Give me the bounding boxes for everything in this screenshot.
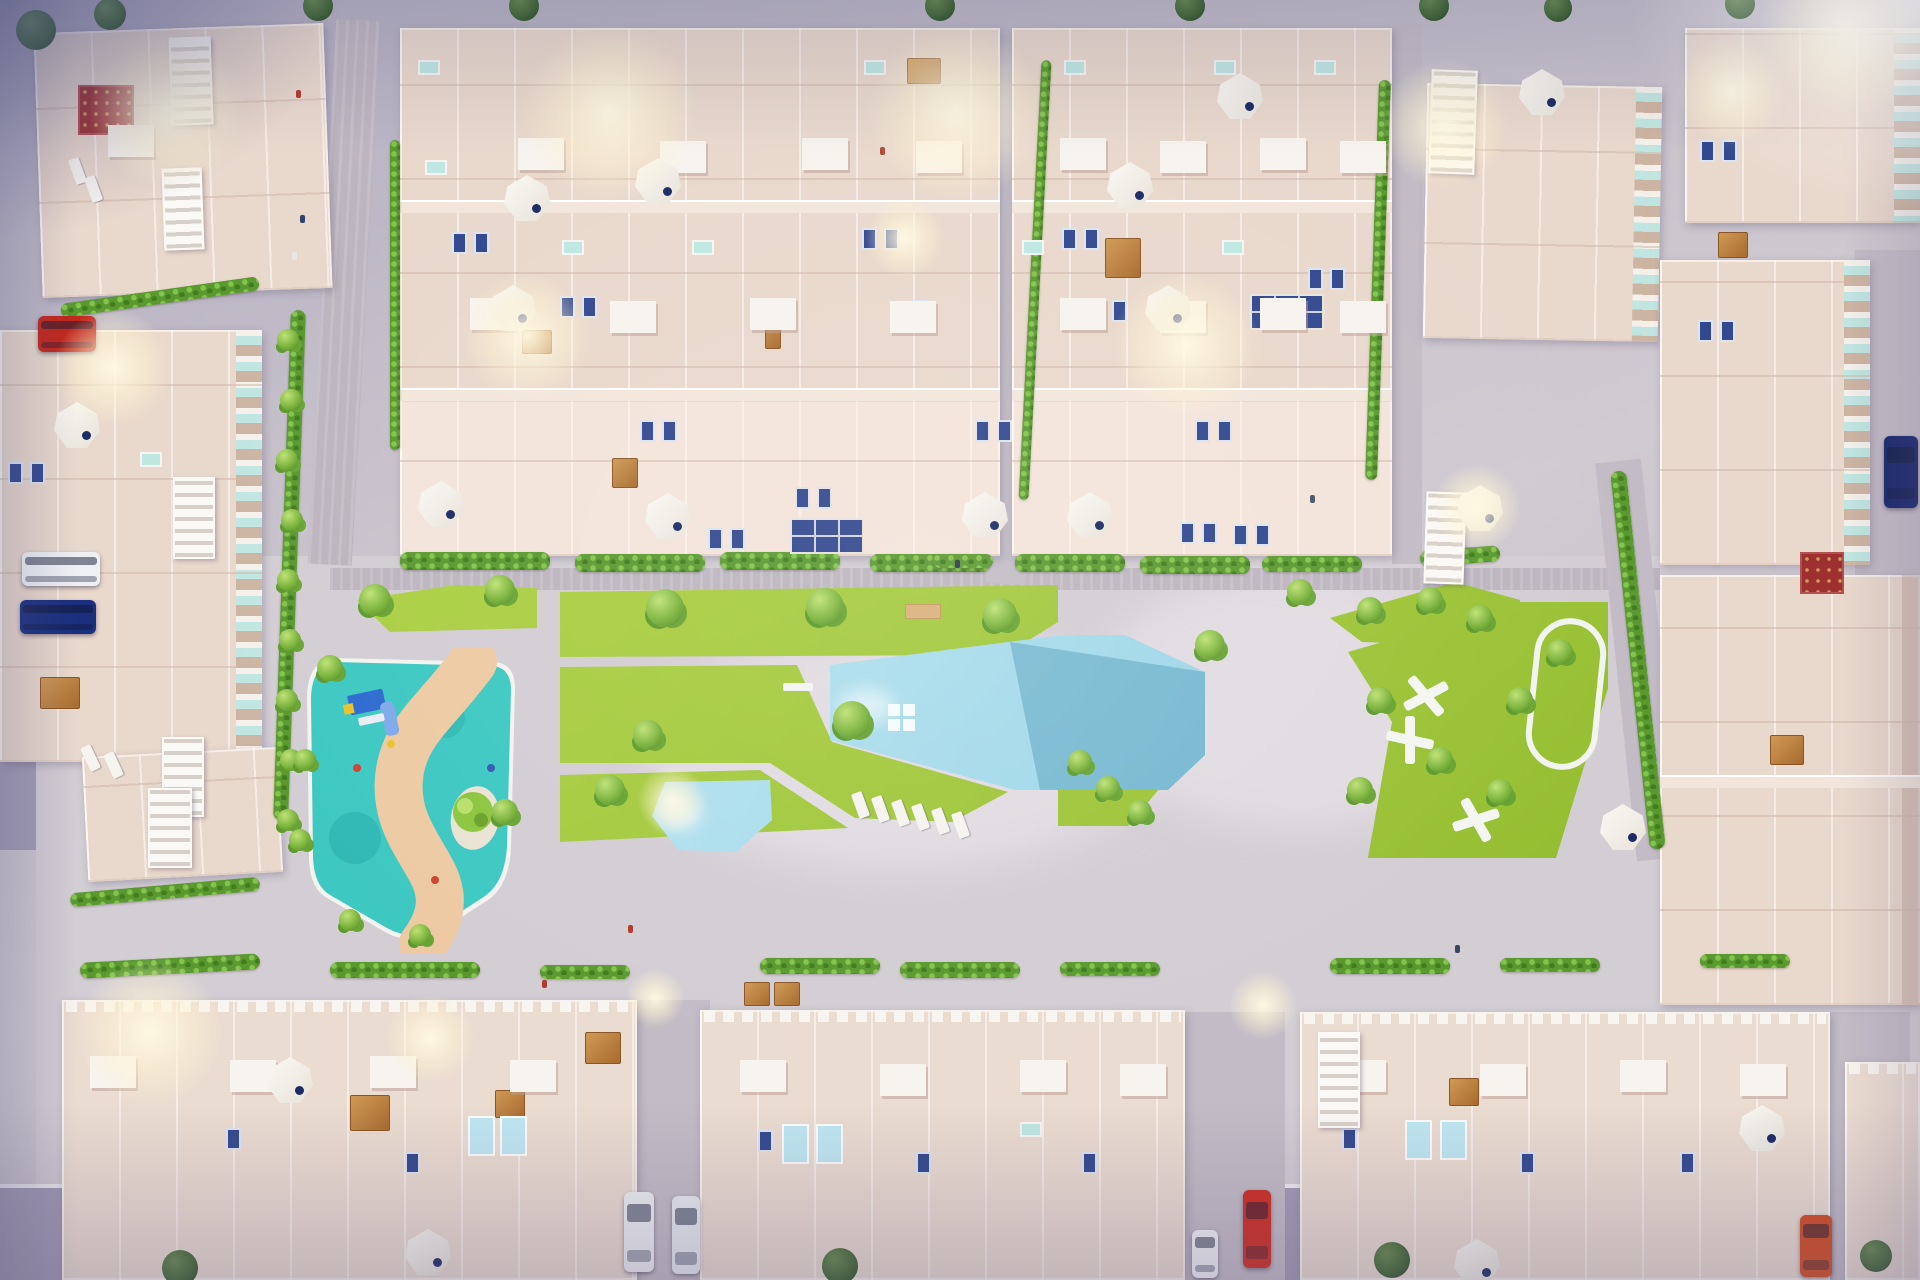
private-pool — [782, 1124, 809, 1164]
tree — [1417, 587, 1443, 613]
street-tree — [162, 1250, 198, 1280]
skylight-panel — [916, 1152, 931, 1174]
roof-structure — [1740, 1064, 1786, 1096]
roof-structure — [1340, 301, 1386, 333]
street-tree — [1860, 1240, 1892, 1272]
tree — [339, 909, 361, 931]
roof-divider — [1660, 775, 1920, 788]
roof-structure — [370, 1056, 416, 1088]
roof-structure — [1120, 1064, 1166, 1096]
tree — [280, 389, 302, 411]
tree — [1128, 800, 1152, 824]
tree — [1357, 597, 1383, 623]
rooftop-stair — [148, 788, 192, 868]
building-top-right-b — [1685, 28, 1920, 223]
street-tree — [94, 0, 126, 30]
hedge-row — [330, 962, 480, 978]
roof-structure — [916, 141, 962, 173]
skylight-panel — [1342, 1128, 1357, 1150]
skylight-panel — [1217, 420, 1232, 442]
skylight-panel — [1700, 140, 1715, 162]
person — [296, 90, 301, 98]
pool-step — [903, 719, 915, 731]
tree — [833, 701, 871, 739]
private-pool — [500, 1116, 527, 1156]
tree — [359, 584, 391, 616]
building-top-right-c — [1660, 260, 1870, 565]
street-top-right — [1392, 24, 1422, 564]
tree — [1487, 779, 1513, 805]
tree — [281, 509, 303, 531]
car-white-van — [1192, 1230, 1218, 1278]
skylight-panel — [1520, 1152, 1535, 1174]
tree — [633, 720, 663, 750]
roof-structure — [510, 1060, 556, 1092]
hedge-row — [540, 965, 630, 979]
skylight-panel — [997, 420, 1012, 442]
car-navy-left — [20, 600, 96, 634]
tree — [1507, 687, 1533, 713]
patio-table — [1718, 232, 1748, 258]
roof-structure — [1060, 298, 1106, 330]
patio-table — [1449, 1078, 1479, 1106]
hedge-row — [575, 554, 705, 572]
tree — [277, 329, 299, 351]
building-top-center-left — [400, 28, 1000, 556]
patio-table — [1770, 735, 1804, 765]
skylight-panel — [1698, 320, 1713, 342]
rooftop-stair — [1318, 1032, 1360, 1128]
skylight-panel — [640, 420, 655, 442]
skylight-panel — [8, 462, 23, 484]
hedge-row — [760, 958, 880, 974]
street-tree — [1175, 0, 1205, 21]
hedge-row — [1060, 962, 1160, 976]
playground — [295, 648, 530, 953]
skylight-panel — [1082, 1152, 1097, 1174]
building-bottom-left — [62, 1000, 637, 1280]
patio-table — [1105, 238, 1141, 278]
street-tree — [1374, 1242, 1410, 1278]
tree — [1096, 776, 1120, 800]
facade-windows — [236, 330, 262, 762]
tree — [492, 799, 518, 825]
tree — [277, 809, 299, 831]
skylight-panel — [758, 1130, 773, 1152]
roof-structure — [90, 1056, 136, 1088]
teal-skylight — [1214, 60, 1236, 75]
roof-structure — [1620, 1060, 1666, 1092]
person — [300, 215, 305, 223]
hedge-row — [1015, 554, 1125, 572]
teal-skylight — [140, 452, 162, 467]
patio-table — [744, 982, 770, 1006]
patio-table — [907, 58, 941, 84]
skylight-panel — [452, 232, 467, 254]
skylight-panel — [405, 1152, 420, 1174]
skylight-panel — [1202, 522, 1217, 544]
roof-structure — [610, 301, 656, 333]
private-pool — [1440, 1120, 1467, 1160]
teal-skylight — [1020, 1122, 1042, 1137]
private-pool — [816, 1124, 843, 1164]
facade-windows — [1632, 87, 1662, 342]
roof-structure — [750, 298, 796, 330]
tree — [485, 575, 515, 605]
hedge-row — [1140, 556, 1250, 574]
street-tree — [822, 1248, 858, 1280]
patio-rug — [1800, 552, 1844, 594]
tree — [1347, 777, 1373, 803]
teal-skylight — [418, 60, 440, 75]
aerial-render-residential-complex — [0, 0, 1920, 1280]
skylight-panel — [560, 296, 575, 318]
teal-skylight — [692, 240, 714, 255]
roof-structure — [890, 301, 936, 333]
tree — [276, 689, 298, 711]
hedge-row — [400, 552, 550, 570]
skylight-panel — [1722, 140, 1737, 162]
hedge-row — [900, 962, 1020, 978]
picnic-blanket — [905, 604, 941, 619]
street-tree — [1419, 0, 1449, 21]
person — [292, 252, 297, 260]
island-tree — [453, 792, 493, 832]
skylight-panel — [1180, 522, 1195, 544]
patio-table — [585, 1032, 621, 1064]
tree — [983, 598, 1017, 632]
hedge-row — [390, 140, 400, 450]
tree — [1195, 630, 1225, 660]
skylight-panel — [708, 528, 723, 550]
tree — [1287, 579, 1313, 605]
skylight-panel — [226, 1128, 241, 1150]
roof-structure — [518, 138, 564, 170]
private-pool — [468, 1116, 495, 1156]
tree — [1427, 747, 1453, 773]
tree — [409, 924, 431, 946]
skylight-panel — [474, 232, 489, 254]
terrace-row — [400, 402, 1000, 556]
person — [542, 980, 547, 988]
roof-divider — [1012, 200, 1392, 213]
tree — [276, 449, 298, 471]
skylight-panel — [1233, 524, 1248, 546]
roof-structure — [1480, 1064, 1526, 1096]
roof-divider — [400, 388, 1000, 401]
patio-table — [774, 982, 800, 1006]
person — [1455, 945, 1460, 953]
solar-panel-grid — [790, 518, 864, 554]
hedge-row — [1500, 958, 1600, 972]
teal-skylight — [1314, 60, 1336, 75]
hedge-row — [720, 552, 840, 570]
car-navy-right-edge — [1884, 436, 1918, 508]
skylight-panel — [1062, 228, 1077, 250]
pool-lane-sign — [783, 683, 813, 691]
roof-structure — [1260, 298, 1306, 330]
tree — [1068, 750, 1092, 774]
car-white-street-a — [624, 1192, 654, 1272]
street-tree — [16, 10, 56, 50]
teal-skylight — [1064, 60, 1086, 75]
skylight-panel — [582, 296, 597, 318]
roof-divider — [400, 200, 1000, 213]
patio-table — [495, 1090, 525, 1118]
skylight-panel — [1308, 268, 1323, 290]
skylight-panel — [975, 420, 990, 442]
tree — [317, 655, 343, 681]
street-tree — [1544, 0, 1572, 22]
small-pool-glow — [658, 796, 702, 830]
teal-skylight — [864, 60, 886, 75]
patio-table — [522, 330, 552, 354]
roof-structure — [1020, 1060, 1066, 1092]
roof-structure — [1060, 138, 1106, 170]
tree — [289, 829, 311, 851]
skylight-panel — [817, 487, 832, 509]
skylight-panel — [662, 420, 677, 442]
skylight-panel — [30, 462, 45, 484]
patio-table — [612, 458, 638, 488]
roof-structure — [1340, 141, 1386, 173]
rooftop-stair — [1428, 69, 1478, 175]
skylight-panel — [795, 487, 810, 509]
skylight-panel — [1680, 1152, 1695, 1174]
tree — [1367, 687, 1393, 713]
private-pool — [1405, 1120, 1432, 1160]
pool-step — [888, 704, 900, 716]
tree — [595, 775, 625, 805]
street-tree — [1725, 0, 1755, 19]
teal-skylight — [1022, 240, 1044, 255]
person — [1310, 495, 1315, 503]
roof-structure — [802, 138, 848, 170]
hedge-row — [1700, 954, 1790, 968]
skylight-panel — [1255, 524, 1270, 546]
tree — [294, 749, 316, 771]
facade-windows — [1894, 28, 1920, 223]
tree — [279, 629, 301, 651]
teal-skylight — [562, 240, 584, 255]
skylight-panel — [730, 528, 745, 550]
skylight-panel — [1330, 268, 1345, 290]
tree — [1467, 605, 1493, 631]
car-white-street-b — [672, 1196, 700, 1274]
person — [955, 560, 960, 568]
roof-divider — [1012, 388, 1392, 401]
car-orange-bottom-right — [1800, 1215, 1832, 1277]
tree — [806, 588, 844, 626]
street-tree — [303, 0, 333, 21]
rooftop-stair — [168, 36, 213, 125]
roof-structure — [1260, 138, 1306, 170]
roof-structure — [880, 1064, 926, 1096]
person — [880, 147, 885, 155]
tree — [277, 569, 299, 591]
pool-step — [903, 704, 915, 716]
facade-windows — [1844, 260, 1870, 565]
skylight-panel — [884, 228, 899, 250]
car-red-bottom — [1243, 1190, 1271, 1268]
roof-structure — [1160, 141, 1206, 173]
hedge-row — [933, 554, 993, 568]
patio-table — [40, 677, 80, 709]
rooftop-stair — [173, 477, 215, 559]
street-tree — [509, 0, 539, 21]
pool-step — [888, 719, 900, 731]
roof-structure — [740, 1060, 786, 1092]
rooftop-stair — [162, 167, 205, 250]
car-white-left — [22, 552, 100, 586]
skylight-panel — [1084, 228, 1099, 250]
hedge-row — [1262, 556, 1362, 572]
skylight-panel — [862, 228, 877, 250]
skylight-panel — [1112, 300, 1127, 322]
roof-structure — [108, 125, 154, 157]
street-tree — [925, 0, 955, 21]
hedge-row — [1330, 958, 1450, 974]
tree — [1547, 639, 1573, 665]
skylight-panel — [1720, 320, 1735, 342]
skylight-panel — [1195, 420, 1210, 442]
tree — [646, 589, 684, 627]
building-right-column — [1660, 575, 1920, 1005]
car-red-top-left — [38, 316, 96, 352]
teal-skylight — [1222, 240, 1244, 255]
teal-skylight — [425, 160, 447, 175]
person — [628, 925, 633, 933]
patio-table — [350, 1095, 390, 1131]
building-top-center-right — [1012, 28, 1392, 556]
